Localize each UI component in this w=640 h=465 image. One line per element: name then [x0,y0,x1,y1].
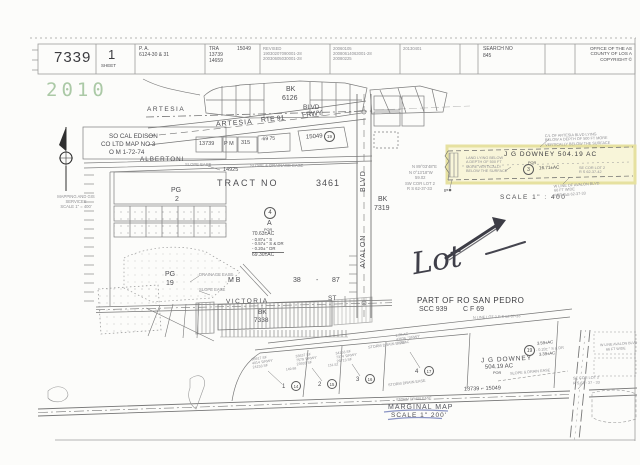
map-linework [0,0,640,465]
avalon-blvd-label: BLVD [360,170,368,192]
pm-69-75-label: -69 75 [261,137,275,143]
gis-services-note: MAPPING AND GIS SERVICES SCALE 1" = 400' [48,195,104,209]
pm-13739-label: 13739 [199,141,214,147]
marginal-parcel-1: 1 [282,384,285,391]
circle-4-parcel: 4 [264,207,276,219]
artesia-street-label: ARTESIA [147,106,185,113]
avalon-street-label: AVALON [360,235,368,268]
marginal-parcel-4: 4 [415,369,418,376]
map-book-number: 7339 [54,49,91,66]
marginal-downey-por: POR [493,371,501,375]
marginal-parcel-2: 2 [318,382,321,389]
sheet-number: 1 [108,48,115,63]
revision-date-4: 20130401 [403,47,422,52]
pg19-number: 19 [166,280,174,288]
slope-ease-note: SLOPE EASE [185,163,211,168]
bk-7319-label: BK [378,196,387,204]
circle-19-top: 19 [324,131,335,142]
mb-38: 38 [293,277,301,285]
edison-line-1: SO CAL EDISON [109,133,158,140]
tract-word: TRACT [217,178,257,188]
pm-315-label: 315 [241,140,250,146]
revised-value-2: 20030605030001-28 [263,57,302,62]
bk-7338-number: 7338 [254,317,268,324]
san-pedro-title: PART OF RO SAN PEDRO [417,296,524,305]
search-no-value: 845 [483,54,491,60]
search-no-label: SEARCH NO [483,47,513,53]
downey-inset-area: 16.71±AC [539,165,560,171]
north-arrow-icon [59,127,73,191]
mb-87: 87 [332,277,340,285]
tract-no-word: NO [261,178,279,188]
circle-14: 14 [291,381,301,391]
bk-7319-number: 7319 [374,205,390,213]
circle-19-marginal: 19 [524,345,535,356]
inset-se-cor-note: SE COR LOT 2 R S 62-37-42 [579,166,605,175]
circle-3-inset: 3 [523,164,534,175]
victoria-st-suffix: ST [328,295,336,302]
victoria-street [96,285,392,341]
office-stamp: OFFICE OF THE AS COUNTY OF LOS A COPYRIG… [570,46,632,62]
se-cor-line-2: R S 62-37-42 [579,170,605,174]
pg2-number: 2 [175,196,179,204]
pm-label: P M [224,141,234,147]
marginal-parcel-3: 3 [356,377,359,384]
mb-label: M B [228,277,240,285]
tra-value-1: 15049 [237,47,251,53]
bk-7338-label: BK [258,309,267,316]
circle-15: 15 [327,379,337,389]
marginal-map-scale: SCALE 1" 200' [391,412,447,419]
albertoni-street-label: ALBERTONI [140,156,184,163]
bk-6126-label: BK [286,86,295,94]
victoria-street-label: VICTORIA [226,298,269,306]
downey-inset-title: J G DOWNEY 504.19 AC [504,151,597,158]
inset-callout-top: C/L OF ARTESIA BLVD LYING BELOW A DEPTH … [545,132,611,147]
marginal-se-cor-2: R S 62 - 37 - 33 [573,381,600,386]
inset-scale-label: SCALE 1" : 400' [500,194,569,201]
sheet-label: SHEET [101,63,116,68]
marginal-map-title: MARGINAL MAP [388,404,453,412]
bk-6126-number: 6126 [282,95,298,103]
callout-left-line-4: BELOW THE SURFACE [466,169,507,173]
pg2-label: PG [171,187,181,195]
pa-value: 6124-30 & 31 [139,53,169,59]
edison-line-2: CO LTD MAP NO 3 [101,141,155,148]
area-calculation: 70.63±AC - 0.87± " S - 0.57± " S & DR - … [252,232,284,259]
parcel-14925: 14925 [223,167,238,173]
gis-note-line-3: SCALE 1" = 400' [48,205,104,210]
sw-cor-note-2: R S 62-37-33 [407,187,432,192]
revision-date-3: 20080225 [333,57,352,62]
assessor-map-page: 7339 1 SHEET P. A. 6124-30 & 31 TRA 1504… [0,0,640,465]
year-stamp: 2010 [46,79,108,101]
tra-value-3: 14659 [209,59,223,65]
pm-15049-label: 15049 [306,133,323,141]
san-pedro-scc: SCC 939 [419,306,447,314]
mb-dash: - [316,277,318,285]
slope-drainage-note: SLOPE & DRAINAGE EASE [250,164,303,169]
inset-ip-label: IP [444,188,448,193]
circle-16: 16 [365,374,375,384]
office-line-3: COPYRIGHT © [570,57,632,62]
circle-17: 17 [424,366,434,376]
area-net: 69.30±AC [252,253,284,259]
tract-number: 3461 [316,178,340,188]
san-pedro-cf: C F 69 [463,306,484,314]
avalon-street [349,94,371,318]
slope-ease-note-2: SLOPE EASE [199,288,225,293]
pg19-label: PG [165,271,175,279]
marginal-pm-row: 13739 ⌐ 15049 [464,385,501,393]
parcel-letter-a: A [267,220,272,228]
inset-callout-left: LAND LYING BELOW A DEPTH OF 500 FT MORE … [466,156,507,173]
